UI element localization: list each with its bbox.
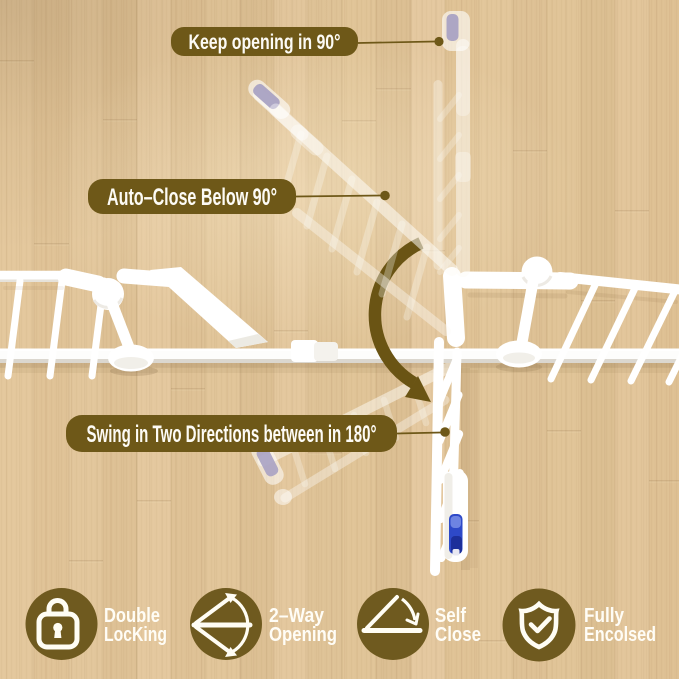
svg-text:Opening: Opening [269, 624, 337, 646]
svg-text:Encolsed: Encolsed [584, 624, 656, 646]
svg-text:Swing in Two Directions betwee: Swing in Two Directions between in 180° [87, 421, 377, 448]
svg-text:LocKing: LocKing [104, 624, 167, 646]
svg-text:Close: Close [435, 624, 481, 646]
svg-text:Keep opening in 90°: Keep opening in 90° [189, 31, 341, 54]
svg-text:Auto–Close Below 90°: Auto–Close Below 90° [107, 184, 277, 211]
